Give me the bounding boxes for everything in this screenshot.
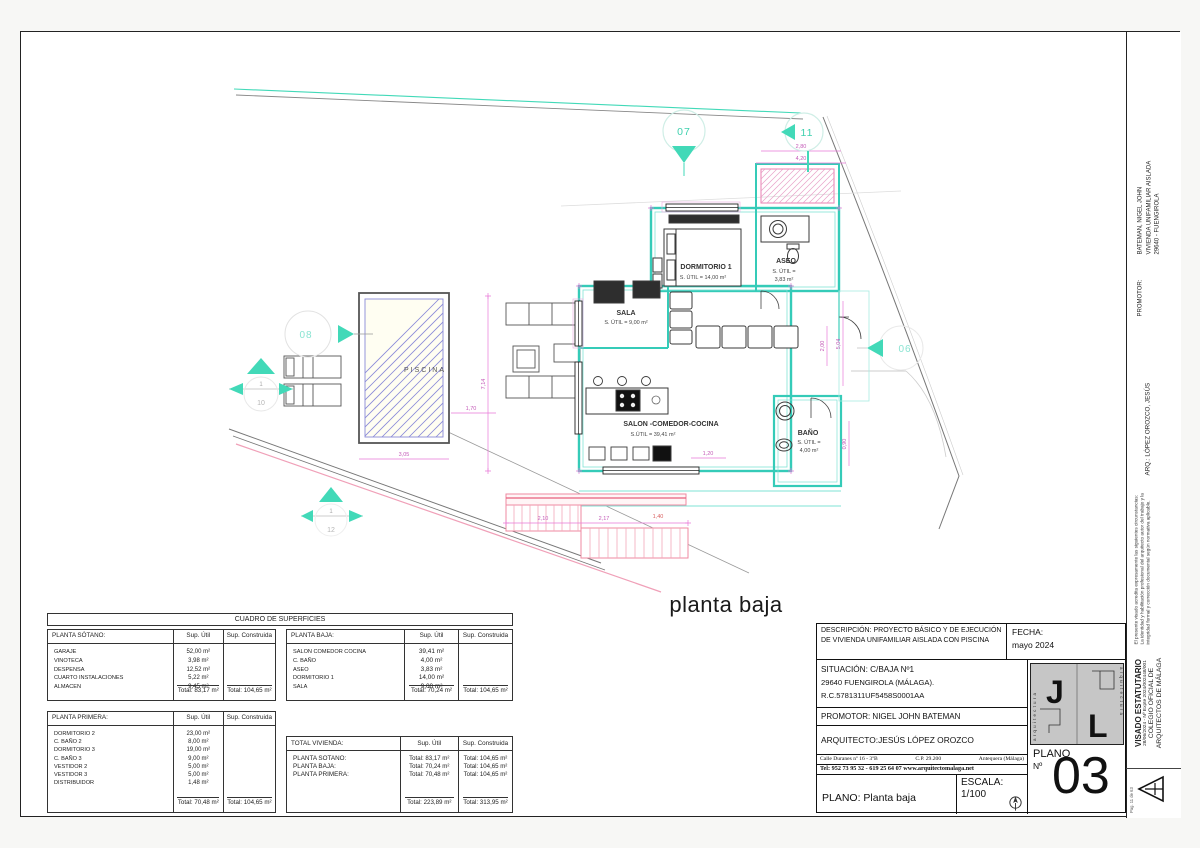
table-rows-values: Total: 83,17 m²Total: 70,24 m²Total: 70,…	[400, 751, 459, 797]
svg-text:0,90: 0,90	[842, 439, 848, 450]
col-header-sup-util: Sup. Útil	[404, 630, 458, 643]
svg-text:2,80: 2,80	[796, 144, 807, 150]
svg-text:1: 1	[329, 509, 333, 515]
exterior-stairs	[506, 494, 688, 558]
table-planta-primera: PLANTA PRIMERA: Sup. Útil Sup. Construid…	[47, 711, 276, 813]
strip-page-note: Pag. 11 de 63	[1129, 771, 1135, 813]
svg-text:1,40: 1,40	[653, 514, 664, 520]
svg-text:06: 06	[898, 344, 911, 355]
visado-title: VISADO ESTATUTARIO	[1134, 623, 1143, 783]
table-header-baja: PLANTA BAJA:	[287, 630, 404, 643]
svg-text:4,00 m²: 4,00 m²	[800, 448, 819, 454]
total-util: Total: 70,24 m²	[409, 685, 455, 696]
plano-no-label-2: Nº	[1033, 761, 1042, 771]
svg-text:1,20: 1,20	[703, 451, 714, 457]
address-street: Calle Duranes nº 16 - 3ºB	[820, 756, 878, 764]
svg-text:2,10: 2,10	[538, 516, 549, 522]
svg-text:J: J	[1046, 674, 1064, 710]
svg-text:3,05: 3,05	[399, 452, 410, 458]
total-construida: Total: 104,65 m²	[227, 797, 271, 807]
svg-text:S. ÚTIL = 14,00 m²: S. ÚTIL = 14,00 m²	[680, 274, 727, 281]
sun-loungers	[284, 356, 341, 406]
fecha-cell: FECHA: mayo 2024	[1007, 624, 1127, 660]
svg-text:3,83 m²: 3,83 m²	[775, 277, 794, 283]
svg-text:12: 12	[327, 527, 335, 534]
table-rows-values: 52,00 m²3,98 m²12,52 m²5,22 m²9,45 m²	[173, 644, 223, 685]
total-util: Total: 83,17 m²	[177, 685, 219, 696]
svg-text:SALA: SALA	[616, 310, 635, 317]
promotor-cell: PROMOTOR: NIGEL JOHN BATEMAN	[817, 708, 1027, 726]
coam-logo-icon	[1136, 775, 1166, 803]
title-block: DESCRIPCIÓN: PROYECTO BÁSICO Y DE EJECUC…	[816, 623, 1126, 813]
north-arrow-icon	[1007, 795, 1024, 812]
escala-cell: ESCALA: 1/100	[957, 775, 1027, 814]
table-rows-names: SALON COMEDOR COCINAC. BAÑOASEODORMITORI…	[287, 644, 404, 685]
descripcion-cell: DESCRIPCIÓN: PROYECTO BÁSICO Y DE EJECUC…	[817, 624, 1007, 660]
plano-number-column: J L arquitectura arquitectura PLANO Nº 0…	[1027, 660, 1127, 814]
marker-06: 06	[857, 326, 923, 370]
fecha-label: FECHA:	[1012, 626, 1122, 639]
col-header-sup-construida: Sup. Construida	[223, 630, 275, 643]
address-tel-web: Tel: 952 73 95 32 - 619 25 64 07 www.arq…	[817, 765, 1027, 775]
floor-plan: 2,80 4,20 7,14 5,04 2,00 1,20 0,90 2,10 …	[21, 32, 1126, 610]
svg-text:DORMITORIO 1: DORMITORIO 1	[680, 264, 731, 271]
svg-text:ASEO: ASEO	[776, 258, 796, 265]
strip-visado-note: El presente visado acredita expresamente…	[1134, 490, 1158, 645]
plan-caption: planta baja	[651, 592, 801, 618]
svg-text:10: 10	[257, 400, 265, 407]
marker-12: 1 12	[301, 487, 363, 536]
arquitecto-cell: ARQUITECTO:JESÚS LÓPEZ OROZCO	[817, 726, 1027, 755]
plano-number: 03	[1052, 750, 1110, 802]
svg-text:2,00: 2,00	[820, 341, 826, 352]
surfaces-table-title-text: CUADRO DE SUPERFICIES	[235, 616, 326, 623]
table-rows-values-2: Total: 104,65 m²Total: 104,65 m²Total: 1…	[458, 751, 512, 797]
jl-logo: J L arquitectura arquitectura	[1030, 663, 1124, 745]
col-header-sup-util: Sup. Útil	[400, 737, 459, 750]
svg-text:08: 08	[299, 330, 312, 341]
terrace-furniture	[506, 303, 580, 398]
table-rows-values: 39,41 m²4,00 m²3,83 m²14,00 m²9,00 m²	[404, 644, 458, 685]
svg-text:arquitectura: arquitectura	[1119, 667, 1124, 717]
visado-org-line1: COLEGIO OFICIAL DE	[1148, 623, 1156, 783]
address-cell: Calle Duranes nº 16 - 3ºB C.P. 29.200 An…	[817, 755, 1027, 775]
svg-text:L: L	[1088, 708, 1108, 744]
marker-07: 07	[663, 110, 705, 176]
svg-text:07: 07	[677, 126, 691, 138]
svg-text:1,70: 1,70	[466, 406, 477, 412]
svg-text:S. ÚTIL = 9,00 m²: S. ÚTIL = 9,00 m²	[604, 319, 648, 326]
address-cp: C.P. 29.200	[915, 756, 941, 764]
plano-name-cell: PLANO: Planta baja	[817, 775, 957, 814]
table-header-total: TOTAL VIVIENDA:	[287, 737, 400, 750]
table-rows-names: PLANTA SOTANO:PLANTA BAJA:PLANTA PRIMERA…	[287, 751, 400, 797]
table-rows-values: 23,00 m²8,00 m²19,00 m²9,00 m²5,00 m²5,0…	[173, 726, 223, 797]
col-header-sup-construida: Sup. Construida	[458, 737, 512, 750]
page-background: { "plan": { "caption": "planta baja", "r…	[0, 0, 1200, 848]
strip-arquitecto-line: ARQ.: LÓPEZ OROZCO, JESÚS	[1145, 356, 1154, 476]
total-construida: Total: 104,65 m²	[463, 685, 509, 696]
address-city: Antequera (Málaga)	[979, 756, 1024, 764]
svg-text:S. ÚTIL =: S. ÚTIL =	[797, 439, 820, 446]
sheet-frame: 2,80 4,20 7,14 5,04 2,00 1,20 0,90 2,10 …	[20, 31, 1180, 817]
table-total-vivienda: TOTAL VIVIENDA: Sup. Útil Sup. Construid…	[286, 736, 513, 813]
svg-text:4,20: 4,20	[796, 156, 807, 162]
svg-text:arquitectura: arquitectura	[1032, 691, 1037, 741]
table-rows-names: DORMITORIO 2C. BAÑO 2DORMITORIO 3C. BAÑO…	[48, 726, 173, 797]
table-header-primera: PLANTA PRIMERA:	[48, 712, 173, 725]
svg-text:SALON -COMEDOR-COCINA: SALON -COMEDOR-COCINA	[623, 421, 718, 428]
surfaces-table-title: CUADRO DE SUPERFICIES	[47, 613, 513, 626]
svg-text:5,04: 5,04	[836, 339, 842, 350]
strip-promotor-block: PROMOTOR:BATEMAN, NIGEL JOHN VIVIENDA UN…	[1137, 102, 1163, 317]
fecha-value: mayo 2024	[1012, 639, 1122, 652]
strip-promotor-line3: 29640 - FUENGIROLA	[1154, 102, 1163, 317]
total-util: Total: 70,48 m²	[177, 797, 219, 807]
svg-text:PISCINA: PISCINA	[404, 367, 446, 374]
escala-label: ESCALA:	[961, 777, 1023, 789]
table-planta-sotano: PLANTA SÓTANO: Sup. Útil Sup. Construida…	[47, 629, 276, 701]
col-header-sup-util: Sup. Útil	[173, 630, 223, 643]
svg-text:11: 11	[801, 127, 814, 139]
marker-10: 1 10	[229, 358, 293, 411]
svg-text:1: 1	[259, 382, 263, 388]
svg-text:BAÑO: BAÑO	[798, 428, 819, 437]
situacion-cell: SITUACIÓN: C/BAJA Nº1 29640 FUENGIROLA (…	[817, 660, 1027, 708]
table-rows-names: GARAJEVINOTECADESPENSACUARTO INSTALACION…	[48, 644, 173, 685]
grand-total-util: Total: 223,89 m²	[405, 797, 454, 807]
strip-promotor-line2: VIVIENDA UNIFAMILIAR AISLADA	[1145, 102, 1154, 317]
total-construida: Total: 104,65 m²	[227, 685, 271, 696]
table-header-sotano: PLANTA SÓTANO:	[48, 630, 173, 643]
svg-text:2,17: 2,17	[599, 516, 610, 522]
svg-text:S. ÚTIL =: S. ÚTIL =	[772, 268, 795, 275]
table-planta-baja: PLANTA BAJA: Sup. Útil Sup. Construida S…	[286, 629, 513, 701]
col-header-sup-util: Sup. Útil	[173, 712, 223, 725]
strip-promotor-name: BATEMAN, NIGEL JOHN	[1138, 187, 1144, 255]
grand-total-construida: Total: 313,95 m²	[463, 797, 509, 807]
visado-org-line2: ARQUITECTOS DE MÁLAGA	[1156, 623, 1164, 783]
svg-text:S.ÚTIL = 39,41 m²: S.ÚTIL = 39,41 m²	[631, 431, 676, 438]
strip-promotor-label: PROMOTOR:	[1137, 255, 1146, 317]
col-header-sup-construida: Sup. Construida	[223, 712, 275, 725]
col-header-sup-construida: Sup. Construida	[458, 630, 512, 643]
svg-text:7,14: 7,14	[481, 379, 487, 390]
strip-visado-block: VISADO ESTATUTARIO 28/06/2024 - Nº Expte…	[1134, 623, 1168, 783]
